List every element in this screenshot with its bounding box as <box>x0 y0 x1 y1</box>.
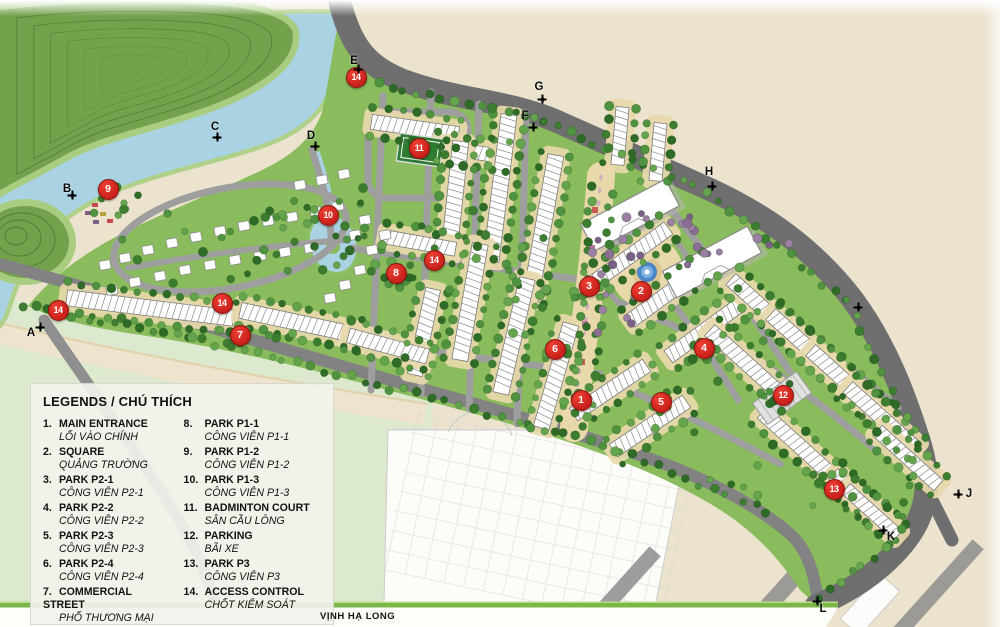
map-marker-12: 12 <box>773 385 794 406</box>
legend-item-number: 3. <box>43 474 59 487</box>
map-marker-2: 2 <box>631 281 652 302</box>
legend-item-label-en: SQUARE <box>59 446 104 458</box>
legend-item-number: 12. <box>184 530 205 543</box>
map-marker-11: 11 <box>409 138 430 159</box>
map-marker-5: 5 <box>651 392 672 413</box>
access-point-letter-F: F <box>521 110 528 122</box>
legend-item-13: 13.PARK P3CÔNG VIÊN P3 <box>184 558 327 584</box>
legend-item-1: 1.MAIN ENTRANCELỐI VÀO CHÍNH <box>43 418 176 444</box>
legend-item-label-vi: CÔNG VIÊN P2-4 <box>59 571 176 584</box>
map-marker-14: 14 <box>424 250 445 271</box>
legend-item-number: 11. <box>184 502 205 515</box>
legend-item-label-en: PARK P2-3 <box>59 530 114 542</box>
map-marker-1: 1 <box>571 390 592 411</box>
access-point-letter-A: A <box>27 327 35 339</box>
bay-label: VỊNH HẠ LONG <box>320 611 395 622</box>
legend-column-2: 8.PARK P1-1CÔNG VIÊN P1-19.PARK P1-2CÔNG… <box>184 418 327 627</box>
access-point-letter-E: E <box>350 55 358 67</box>
map-marker-3: 3 <box>579 276 600 297</box>
legend-item-number: 13. <box>184 558 205 571</box>
legend-item-label-en: PARK P1-2 <box>205 446 260 458</box>
legend-item-9: 9.PARK P1-2CÔNG VIÊN P1-2 <box>184 446 327 472</box>
legend-item-label-vi: CÔNG VIÊN P1-3 <box>205 487 327 500</box>
legend-item-label-vi: QUẢNG TRƯỜNG <box>59 459 176 472</box>
legend-item-label-vi: CÔNG VIÊN P1-1 <box>205 431 327 444</box>
legend-item-number: 7. <box>43 586 59 599</box>
legend-item-number: 5. <box>43 530 59 543</box>
legend-columns: 1.MAIN ENTRANCELỐI VÀO CHÍNH2.SQUAREQUẢN… <box>31 418 333 627</box>
access-point-letter-D: D <box>307 130 315 142</box>
survey-cross-icon-A <box>36 323 45 332</box>
survey-cross-icon-D <box>311 142 320 151</box>
map-overlay: LEGENDS / CHÚ THÍCH 1.MAIN ENTRANCELỐI V… <box>0 0 1000 627</box>
legend-item-label-vi: LỐI VÀO CHÍNH <box>59 431 176 444</box>
map-marker-6: 6 <box>545 339 566 360</box>
legend-item-number: 1. <box>43 418 59 431</box>
legend-item-label-en: PARK P2-4 <box>59 558 114 570</box>
legend-item-number: 4. <box>43 502 59 515</box>
legend-item-label-vi: PHỐ THƯƠNG MẠI <box>59 612 176 625</box>
legend-item-number: 6. <box>43 558 59 571</box>
legend-item-14: 14.ACCESS CONTROLCHỐT KIỂM SOÁT <box>184 586 327 612</box>
map-marker-14: 14 <box>48 300 69 321</box>
map-marker-10: 10 <box>318 205 339 226</box>
legend-item-label-en: ACCESS CONTROL <box>205 586 304 598</box>
legend-item-11: 11.BADMINTON COURTSÂN CẦU LÔNG <box>184 502 327 528</box>
legend-item-label-vi: CÔNG VIÊN P2-3 <box>59 543 176 556</box>
legend-item-8: 8.PARK P1-1CÔNG VIÊN P1-1 <box>184 418 327 444</box>
legend-item-5: 5.PARK P2-3CÔNG VIÊN P2-3 <box>43 530 176 556</box>
legend-item-label-en: PARK P2-1 <box>59 474 114 486</box>
masterplan-map: { "legend": { "title": "LEGENDS / CHÚ TH… <box>0 0 1000 627</box>
legend-item-number: 8. <box>184 418 205 431</box>
legend-item-label-vi: BÃI XE <box>205 543 327 556</box>
legend-column-1: 1.MAIN ENTRANCELỐI VÀO CHÍNH2.SQUAREQUẢN… <box>43 418 176 627</box>
access-point-letter-K: K <box>887 531 895 543</box>
access-point-letter-J: J <box>966 488 972 500</box>
survey-cross-icon-J <box>954 490 963 499</box>
legend-item-label-en: PARK P2-2 <box>59 502 114 514</box>
survey-cross-icon-H <box>708 182 717 191</box>
legend-item-label-vi: SÂN CẦU LÔNG <box>205 515 327 528</box>
map-marker-7: 7 <box>230 325 251 346</box>
access-point-letter-L: L <box>819 603 826 615</box>
map-marker-9: 9 <box>98 179 119 200</box>
map-marker-8: 8 <box>386 263 407 284</box>
legend-item-label-vi: CÔNG VIÊN P2-2 <box>59 515 176 528</box>
legend-item-label-en: MAIN ENTRANCE <box>59 418 148 430</box>
legend-item-10: 10.PARK P1-3CÔNG VIÊN P1-3 <box>184 474 327 500</box>
survey-cross-icon <box>854 303 863 312</box>
legend-item-6: 6.PARK P2-4CÔNG VIÊN P2-4 <box>43 558 176 584</box>
legend-item-4: 4.PARK P2-2CÔNG VIÊN P2-2 <box>43 502 176 528</box>
legend-title: LEGENDS / CHÚ THÍCH <box>43 394 333 409</box>
map-marker-4: 4 <box>694 338 715 359</box>
legend-item-number: 10. <box>184 474 205 487</box>
legend-item-3: 3.PARK P2-1CÔNG VIÊN P2-1 <box>43 474 176 500</box>
survey-cross-icon-C <box>213 133 222 142</box>
legend-item-label-vi: CÔNG VIÊN P2-1 <box>59 487 176 500</box>
legend-item-number: 9. <box>184 446 205 459</box>
legend-item-label-vi: CÔNG VIÊN P1-2 <box>205 459 327 472</box>
legend-item-label-vi: CHỐT KIỂM SOÁT <box>205 599 327 612</box>
legend-item-7: 7.COMMERCIAL STREETPHỐ THƯƠNG MẠI <box>43 586 176 625</box>
legend-item-label-en: PARK P3 <box>205 558 250 570</box>
legend-item-number: 14. <box>184 586 205 599</box>
legend-item-number: 2. <box>43 446 59 459</box>
legend-item-label-en: BADMINTON COURT <box>205 502 310 514</box>
access-point-letter-G: G <box>535 81 544 93</box>
legend-item-label-en: PARKING <box>205 530 253 542</box>
access-point-letter-C: C <box>211 121 219 133</box>
legend-item-12: 12.PARKINGBÃI XE <box>184 530 327 556</box>
legend-item-label-en: PARK P1-3 <box>205 474 260 486</box>
map-marker-13: 13 <box>824 479 845 500</box>
access-point-letter-B: B <box>63 183 71 195</box>
legend-item-label-en: PARK P1-1 <box>205 418 260 430</box>
legend-panel: LEGENDS / CHÚ THÍCH 1.MAIN ENTRANCELỐI V… <box>30 383 334 625</box>
survey-cross-icon-G <box>538 95 547 104</box>
map-marker-14: 14 <box>212 293 233 314</box>
legend-item-2: 2.SQUAREQUẢNG TRƯỜNG <box>43 446 176 472</box>
access-point-letter-H: H <box>705 166 713 178</box>
legend-item-label-vi: CÔNG VIÊN P3 <box>205 571 327 584</box>
survey-cross-icon-F <box>529 123 538 132</box>
